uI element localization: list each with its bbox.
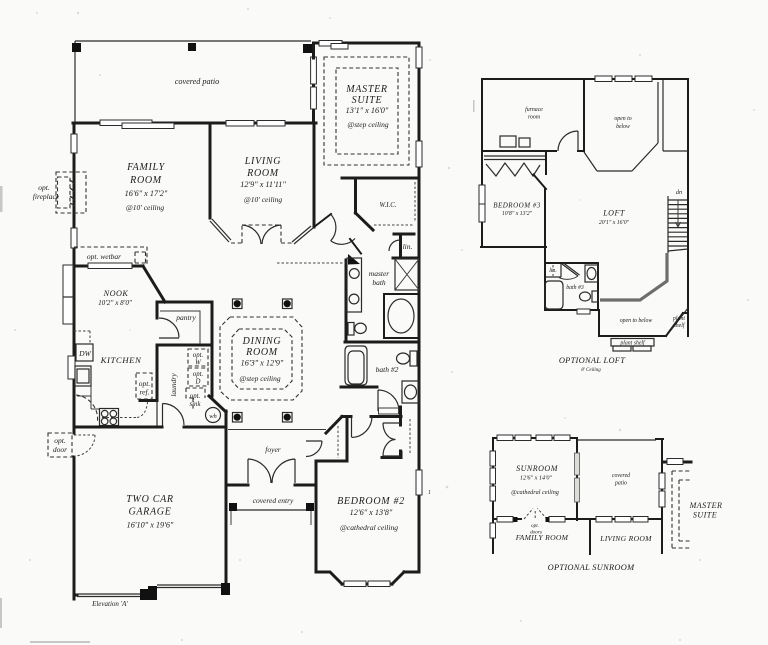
- svg-text:opt.: opt.: [38, 183, 50, 192]
- svg-text:pantry: pantry: [175, 313, 196, 322]
- svg-text:opt.: opt.: [193, 352, 204, 359]
- svg-text:ROOM: ROOM: [245, 347, 278, 358]
- svg-text:1: 1: [428, 490, 431, 496]
- svg-text:@cathedral ceiling: @cathedral ceiling: [511, 489, 559, 496]
- svg-text:open to: open to: [614, 116, 631, 122]
- svg-text:OPTIONAL LOFT: OPTIONAL LOFT: [559, 356, 626, 365]
- svg-text:FAMILY ROOM: FAMILY ROOM: [515, 533, 569, 542]
- svg-text:plant: plant: [672, 316, 685, 322]
- svg-text:BEDROOM #3: BEDROOM #3: [493, 202, 541, 210]
- svg-text:@step ceiling: @step ceiling: [347, 120, 389, 129]
- svg-text:LIVING: LIVING: [244, 156, 281, 167]
- svg-text:ref.: ref.: [140, 388, 150, 397]
- svg-text:12'6" x 14'0": 12'6" x 14'0": [520, 475, 553, 482]
- svg-text:bath: bath: [372, 278, 386, 287]
- svg-text:GARAGE: GARAGE: [128, 507, 171, 518]
- svg-text:Elevation 'A': Elevation 'A': [91, 600, 128, 608]
- svg-text:opt.: opt.: [531, 523, 539, 529]
- svg-text:@step ceiling: @step ceiling: [239, 374, 281, 383]
- svg-text:12'9" x 11'11": 12'9" x 11'11": [240, 180, 286, 189]
- svg-text:DW: DW: [78, 349, 91, 358]
- svg-text:MASTER: MASTER: [689, 501, 723, 510]
- svg-text:opt.: opt.: [54, 436, 66, 445]
- svg-text:SUITE: SUITE: [693, 511, 717, 520]
- svg-text:lin.: lin.: [403, 242, 413, 251]
- svg-text:open to below: open to below: [620, 318, 653, 324]
- svg-text:bath #2: bath #2: [376, 365, 399, 374]
- svg-text:laundry: laundry: [169, 373, 178, 397]
- svg-text:KITCHEN: KITCHEN: [100, 355, 142, 365]
- svg-text:10'8" x 13'2": 10'8" x 13'2": [502, 211, 533, 217]
- svg-text:13'1" x 16'0": 13'1" x 16'0": [346, 106, 389, 115]
- svg-text:MASTER: MASTER: [345, 84, 387, 95]
- svg-text:covered patio: covered patio: [175, 77, 219, 86]
- svg-text:OPTIONAL SUNROOM: OPTIONAL SUNROOM: [548, 563, 635, 572]
- svg-text:fireplace: fireplace: [33, 192, 60, 201]
- svg-text:D: D: [195, 379, 201, 386]
- svg-text:16'10" x 19'6": 16'10" x 19'6": [127, 521, 174, 530]
- svg-text:BEDROOM #2: BEDROOM #2: [337, 496, 405, 507]
- svg-text:below: below: [616, 124, 630, 130]
- svg-text:FAMILY: FAMILY: [126, 162, 165, 173]
- svg-text:covered: covered: [612, 473, 630, 479]
- svg-text:room: room: [528, 115, 540, 121]
- svg-text:covered entry: covered entry: [253, 496, 294, 505]
- svg-text:16'3" x 12'9": 16'3" x 12'9": [241, 359, 284, 368]
- svg-text:10'2" x 8'0": 10'2" x 8'0": [98, 299, 133, 307]
- svg-text:door: door: [53, 445, 67, 454]
- svg-text:lin.: lin.: [549, 268, 557, 274]
- svg-text:furnace: furnace: [525, 106, 543, 113]
- svg-text:ROOM: ROOM: [246, 168, 279, 179]
- svg-text:dn: dn: [676, 189, 682, 196]
- svg-text:opt. wetbar: opt. wetbar: [87, 252, 121, 261]
- svg-text:opt.: opt.: [193, 371, 204, 378]
- svg-text:TWO CAR: TWO CAR: [126, 494, 173, 505]
- svg-text:foyer: foyer: [265, 445, 280, 454]
- svg-text:opt.: opt.: [190, 393, 201, 400]
- svg-text:LOFT: LOFT: [602, 209, 625, 218]
- svg-text:LIVING ROOM: LIVING ROOM: [599, 534, 652, 543]
- svg-text:DINING: DINING: [242, 336, 282, 347]
- svg-text:@10' ceiling: @10' ceiling: [244, 195, 283, 204]
- svg-text:20'1" x 16'0": 20'1" x 16'0": [599, 220, 630, 226]
- svg-text:@10' ceiling: @10' ceiling: [126, 203, 165, 212]
- svg-text:wh: wh: [209, 413, 217, 420]
- svg-text:W.I.C.: W.I.C.: [380, 202, 397, 209]
- svg-text:sink: sink: [190, 401, 202, 408]
- svg-text:NOOK: NOOK: [103, 289, 129, 298]
- svg-text:ROOM: ROOM: [129, 175, 162, 186]
- svg-text:master: master: [369, 269, 389, 278]
- svg-text:8' Ceiling: 8' Ceiling: [581, 368, 601, 373]
- svg-text:bath #3: bath #3: [566, 285, 584, 291]
- svg-text:16'6" x 17'2": 16'6" x 17'2": [125, 189, 168, 198]
- svg-text:patio: patio: [614, 481, 627, 487]
- svg-text:shelf: shelf: [674, 322, 686, 329]
- svg-text:SUITE: SUITE: [352, 95, 383, 106]
- svg-text:@cathedral ceiling: @cathedral ceiling: [340, 523, 398, 532]
- svg-text:SUNROOM: SUNROOM: [516, 464, 559, 473]
- svg-text:12'6" x 13'8": 12'6" x 13'8": [350, 508, 393, 517]
